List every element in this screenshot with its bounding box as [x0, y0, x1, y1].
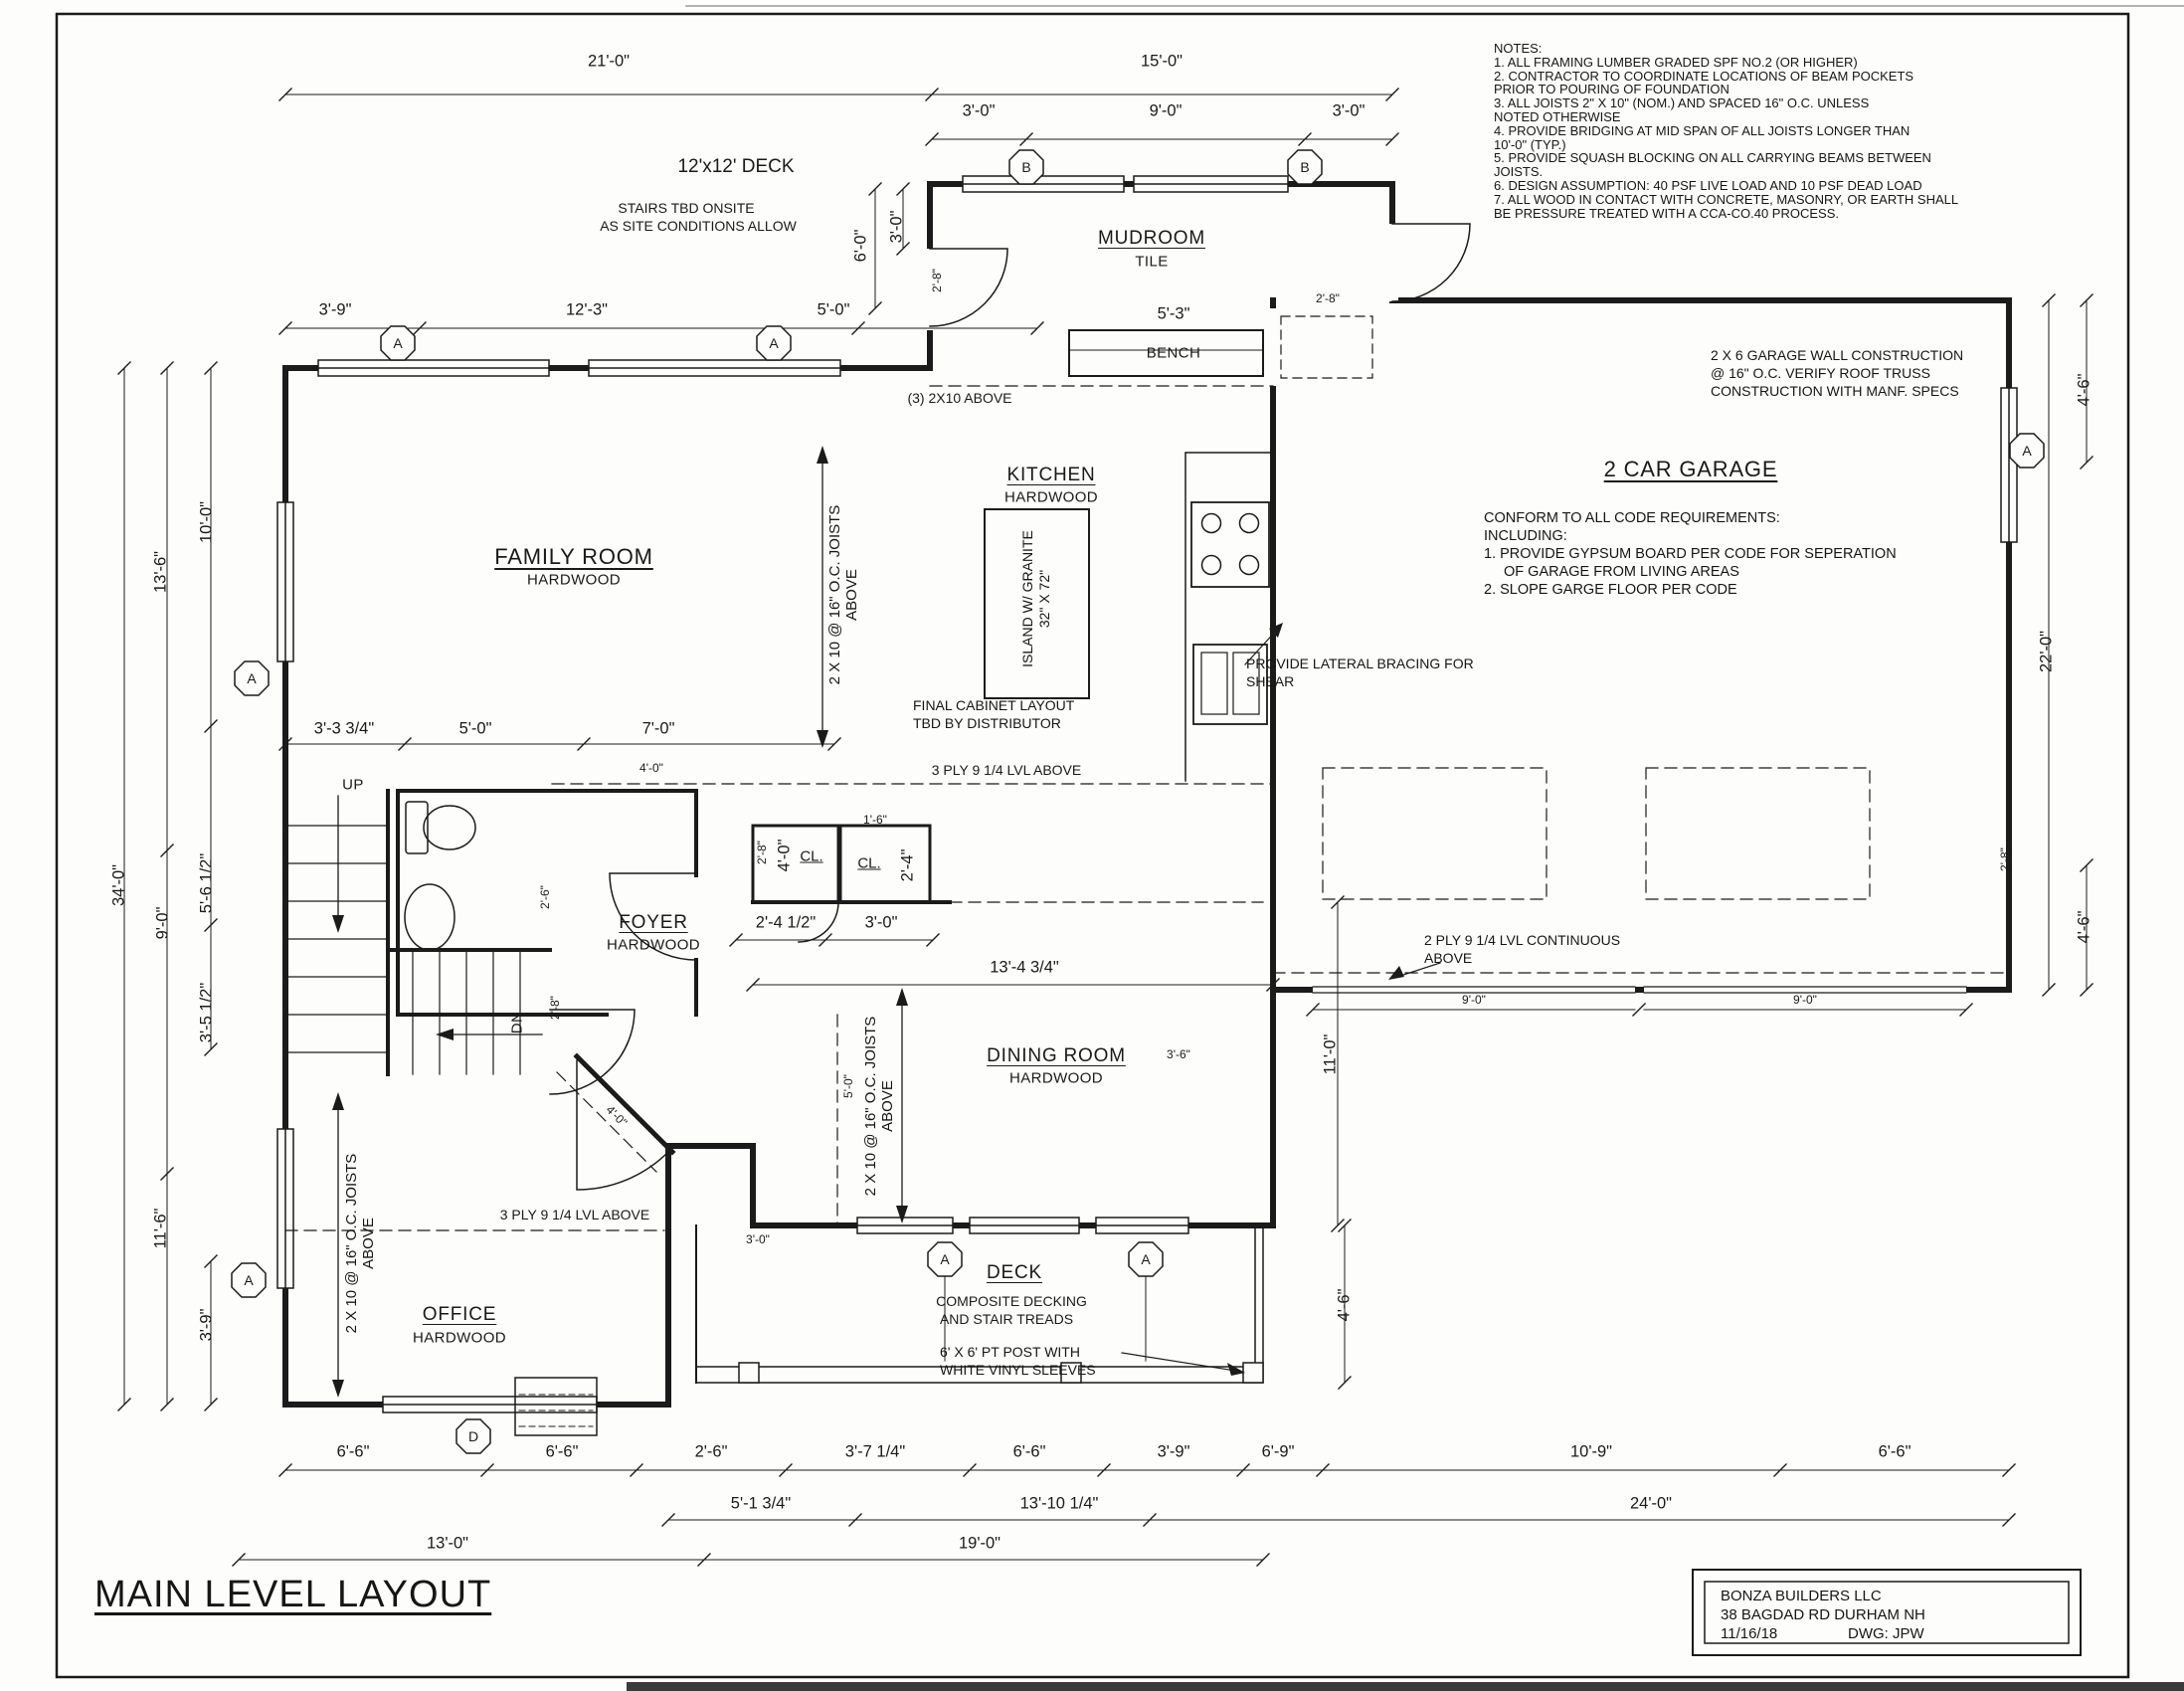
note-line: NOTED OTHERWISE [1494, 110, 1958, 124]
note-line: BE PRESSURE TREATED WITH A CCA-CO.40 PRO… [1494, 207, 1958, 221]
dim-2-4: 2'-4" [899, 849, 918, 882]
dim-11-0: 11'-0" [1322, 1034, 1341, 1075]
note-line: 10'-0" (TYP.) [1494, 138, 1958, 152]
dim-9-0-door-a: 9'-0" [1462, 993, 1486, 1007]
closet1-label: CL. [800, 848, 822, 865]
dim-13-0: 13'-0" [427, 1535, 468, 1554]
marker-a3: A [247, 670, 257, 686]
dim-13-10-14: 13'-10 1/4" [1020, 1495, 1099, 1514]
dim-2-6-bottom: 2'-6" [695, 1443, 728, 1462]
garage-wall-note: 2 X 6 GARAGE WALL CONSTRUCTION @ 16" O.C… [1711, 346, 1963, 400]
deck-post-note: 6' X 6' PT POST WITH WHITE VINYL SLEEVES [940, 1343, 1096, 1379]
dim-3-0-a: 3'-0" [963, 102, 996, 121]
dim-4-0-closet: 4'-0" [776, 840, 795, 872]
dining-floor: HARDWOOD [1009, 1070, 1103, 1087]
dim-2-8-garage-door: 2'-8" [1316, 291, 1340, 305]
closet2-label: CL. [857, 855, 880, 872]
note-line: 7. ALL WOOD IN CONTACT WITH CONCRETE, MA… [1494, 193, 1958, 207]
dim-3-0-b: 3'-0" [1333, 102, 1365, 121]
deck-top-note1: STAIRS TBD ONSITE [618, 200, 754, 216]
marker-a2: A [769, 335, 779, 351]
dim-9-0-door-b: 9'-0" [1793, 993, 1817, 1007]
stairs-dn-label: DN [509, 1012, 526, 1033]
dim-2-4-half: 2'-4 1/2" [756, 914, 816, 933]
dim-15-0: 15'-0" [1141, 53, 1183, 72]
dim-1-6: 1'-6" [863, 813, 887, 827]
note-line: 5. PROVIDE SQUASH BLOCKING ON ALL CARRYI… [1494, 151, 1958, 165]
dim-4-0-opening: 4'-0" [639, 761, 663, 775]
titleblock-dwg: DWG: JPW [1848, 1625, 1924, 1642]
kitchen-floor: HARDWOOD [1004, 489, 1098, 506]
deck-label: DECK [987, 1262, 1042, 1284]
dim-5-0-dining: 5'-0" [841, 1074, 855, 1098]
garage-code-notes: CONFORM TO ALL CODE REQUIREMENTS: INCLUD… [1484, 509, 1897, 599]
marker-b1: B [1021, 159, 1030, 175]
dim-5-0-hall: 5'-0" [459, 720, 492, 739]
bench-label: BENCH [1147, 345, 1201, 362]
dim-6-6-a: 6'-6" [337, 1443, 370, 1462]
titleblock-address: 38 BAGDAD RD DURHAM NH [1721, 1606, 1925, 1623]
dim-2-6-bath: 2'-6" [538, 885, 552, 909]
marker-a6: A [940, 1251, 950, 1267]
dim-5-1-34: 5'-1 3/4" [731, 1495, 791, 1514]
titleblock-date: 11/16/18 [1721, 1625, 1777, 1642]
dim-5-0-top: 5'-0" [818, 301, 850, 320]
dim-22-0: 22'-0" [2038, 631, 2057, 672]
deck-top-label: 12'x12' DECK [677, 156, 794, 178]
dim-3-9-bottom: 3'-9" [1158, 1443, 1190, 1462]
dim-10-9: 10'-9" [1570, 1443, 1612, 1462]
note-line: 2. CONTRACTOR TO COORDINATE LOCATIONS OF… [1494, 70, 1958, 84]
lvl-note-kitchen: 3 PLY 9 1/4 LVL ABOVE [932, 762, 1081, 778]
dim-3-0-v: 3'-0" [888, 211, 907, 244]
sheet-title: MAIN LEVEL LAYOUT [94, 1574, 491, 1616]
deck-top-note2: AS SITE CONDITIONS ALLOW [600, 218, 797, 234]
marker-a7: A [1141, 1251, 1151, 1267]
foyer-floor: HARDWOOD [607, 937, 700, 954]
dim-10-0: 10'-0" [198, 501, 217, 543]
note-line: 6. DESIGN ASSUMPTION: 40 PSF LIVE LOAD A… [1494, 179, 1958, 193]
dim-6-0: 6'-0" [852, 230, 871, 263]
foyer-label: FOYER [619, 912, 687, 934]
dim-3-5-half: 3'-5 1/2" [198, 983, 217, 1042]
island-note: ISLAND W/ GRANITE 32" X 72" [1019, 530, 1053, 667]
joists-note-family: 2 X 10 @ 16" O.C. JOISTS ABOVE [826, 505, 860, 685]
lateral-bracing-note: PROVIDE LATERAL BRACING FOR SHEAR [1246, 655, 1474, 690]
dim-3-9-left: 3'-9" [198, 1309, 217, 1342]
dim-2-8-closet: 2'-8" [755, 841, 769, 864]
kitchen-label: KITCHEN [1007, 465, 1096, 486]
notes-block: NOTES: 1. ALL FRAMING LUMBER GRADED SPF … [1494, 42, 1958, 220]
dim-2-8-mud: 2'-8" [930, 269, 944, 292]
note-line: 4. PROVIDE BRIDGING AT MID SPAN OF ALL J… [1494, 124, 1958, 138]
joists-note-dining: 2 X 10 @ 16" O.C. JOISTS ABOVE [862, 1017, 896, 1197]
dim-9-0: 9'-0" [1150, 102, 1183, 121]
titleblock-company: BONZA BUILDERS LLC [1721, 1588, 1882, 1604]
lvl2-note: 2 PLY 9 1/4 LVL CONTINUOUS ABOVE [1424, 931, 1620, 967]
dim-6-6-b: 6'-6" [546, 1443, 579, 1462]
cabinet-note: FINAL CABINET LAYOUT TBD BY DISTRIBUTOR [913, 696, 1074, 732]
dim-4-6-right-a: 4'-6" [2076, 374, 2094, 407]
office-label: OFFICE [423, 1304, 496, 1326]
dim-13-4-34: 13'-4 3/4" [990, 959, 1059, 978]
mudroom-floor: TILE [1135, 254, 1168, 271]
note-3-2x10: (3) 2X10 ABOVE [907, 390, 1011, 406]
dim-34-0: 34'-0" [110, 864, 129, 906]
mudroom-label: MUDROOM [1098, 228, 1205, 250]
dim-2-8-dn: 2'-8" [548, 996, 562, 1020]
deck-note1: COMPOSITE DECKING [936, 1293, 1087, 1309]
dim-9-0-left: 9'-0" [154, 907, 173, 940]
dim-11-6: 11'-6" [152, 1209, 171, 1249]
note-line: 1. ALL FRAMING LUMBER GRADED SPF NO.2 (O… [1494, 56, 1958, 70]
dim-5-6-half: 5'-6 1/2" [198, 853, 217, 913]
dim-24-0: 24'-0" [1630, 1495, 1672, 1514]
joists-note-office: 2 X 10 @ 16" O.C. JOISTS ABOVE [343, 1154, 377, 1334]
dim-3-6: 3'-6" [1167, 1047, 1190, 1061]
dim-12-3: 12'-3" [566, 301, 608, 320]
note-line: PRIOR TO POURING OF FOUNDATION [1494, 83, 1958, 96]
dim-6-6-d: 6'-6" [1879, 1443, 1911, 1462]
marker-a1: A [393, 335, 403, 351]
scan-artifact-band [627, 1682, 2184, 1691]
dim-3-3-34: 3'-3 3/4" [314, 720, 374, 739]
dim-13-6: 13'-6" [152, 551, 171, 593]
marker-a4: A [244, 1272, 254, 1288]
family-room-label: FAMILY ROOM [494, 544, 653, 570]
dim-4-6-right-b: 4'-6" [2076, 911, 2094, 944]
marker-a5: A [2022, 443, 2032, 459]
deck-note2: AND STAIR TREADS [940, 1311, 1073, 1327]
office-floor: HARDWOOD [413, 1330, 506, 1347]
note-line: JOISTS. [1494, 165, 1958, 179]
notes-heading: NOTES: [1494, 42, 1958, 56]
garage-label: 2 CAR GARAGE [1604, 457, 1778, 482]
dim-5-3: 5'-3" [1158, 305, 1190, 324]
dim-4-6-deck: 4'-6" [1336, 1289, 1355, 1322]
note-line: 3. ALL JOISTS 2" X 10" (NOM.) AND SPACED… [1494, 96, 1958, 110]
dim-6-6-c: 6'-6" [1013, 1443, 1046, 1462]
marker-d1: D [468, 1428, 478, 1444]
dim-3-0-foyer: 3'-0" [865, 914, 898, 933]
dim-3-7-14: 3'-7 1/4" [845, 1443, 905, 1462]
dim-21-0: 21'-0" [588, 53, 630, 72]
family-room-floor: HARDWOOD [527, 572, 621, 589]
lvl-note-office: 3 PLY 9 1/4 LVL ABOVE [500, 1207, 649, 1222]
stairs-up-label: UP [342, 777, 364, 794]
dim-3-9: 3'-9" [319, 301, 352, 320]
dining-label: DINING ROOM [987, 1045, 1126, 1067]
dim-3-0-deck: 3'-0" [746, 1232, 770, 1246]
floor-plan-linework: A A A A A A A B B D [0, 0, 2184, 1691]
marker-b2: B [1300, 159, 1309, 175]
drawing-sheet: A A A A A A A B B D NOTES: 1. ALL FRAMIN… [0, 0, 2184, 1691]
dim-19-0: 19'-0" [959, 1535, 1001, 1554]
dim-2-8-right: 2'-8" [1998, 847, 2012, 871]
dim-6-9: 6'-9" [1262, 1443, 1295, 1462]
dim-7-0: 7'-0" [642, 720, 675, 739]
